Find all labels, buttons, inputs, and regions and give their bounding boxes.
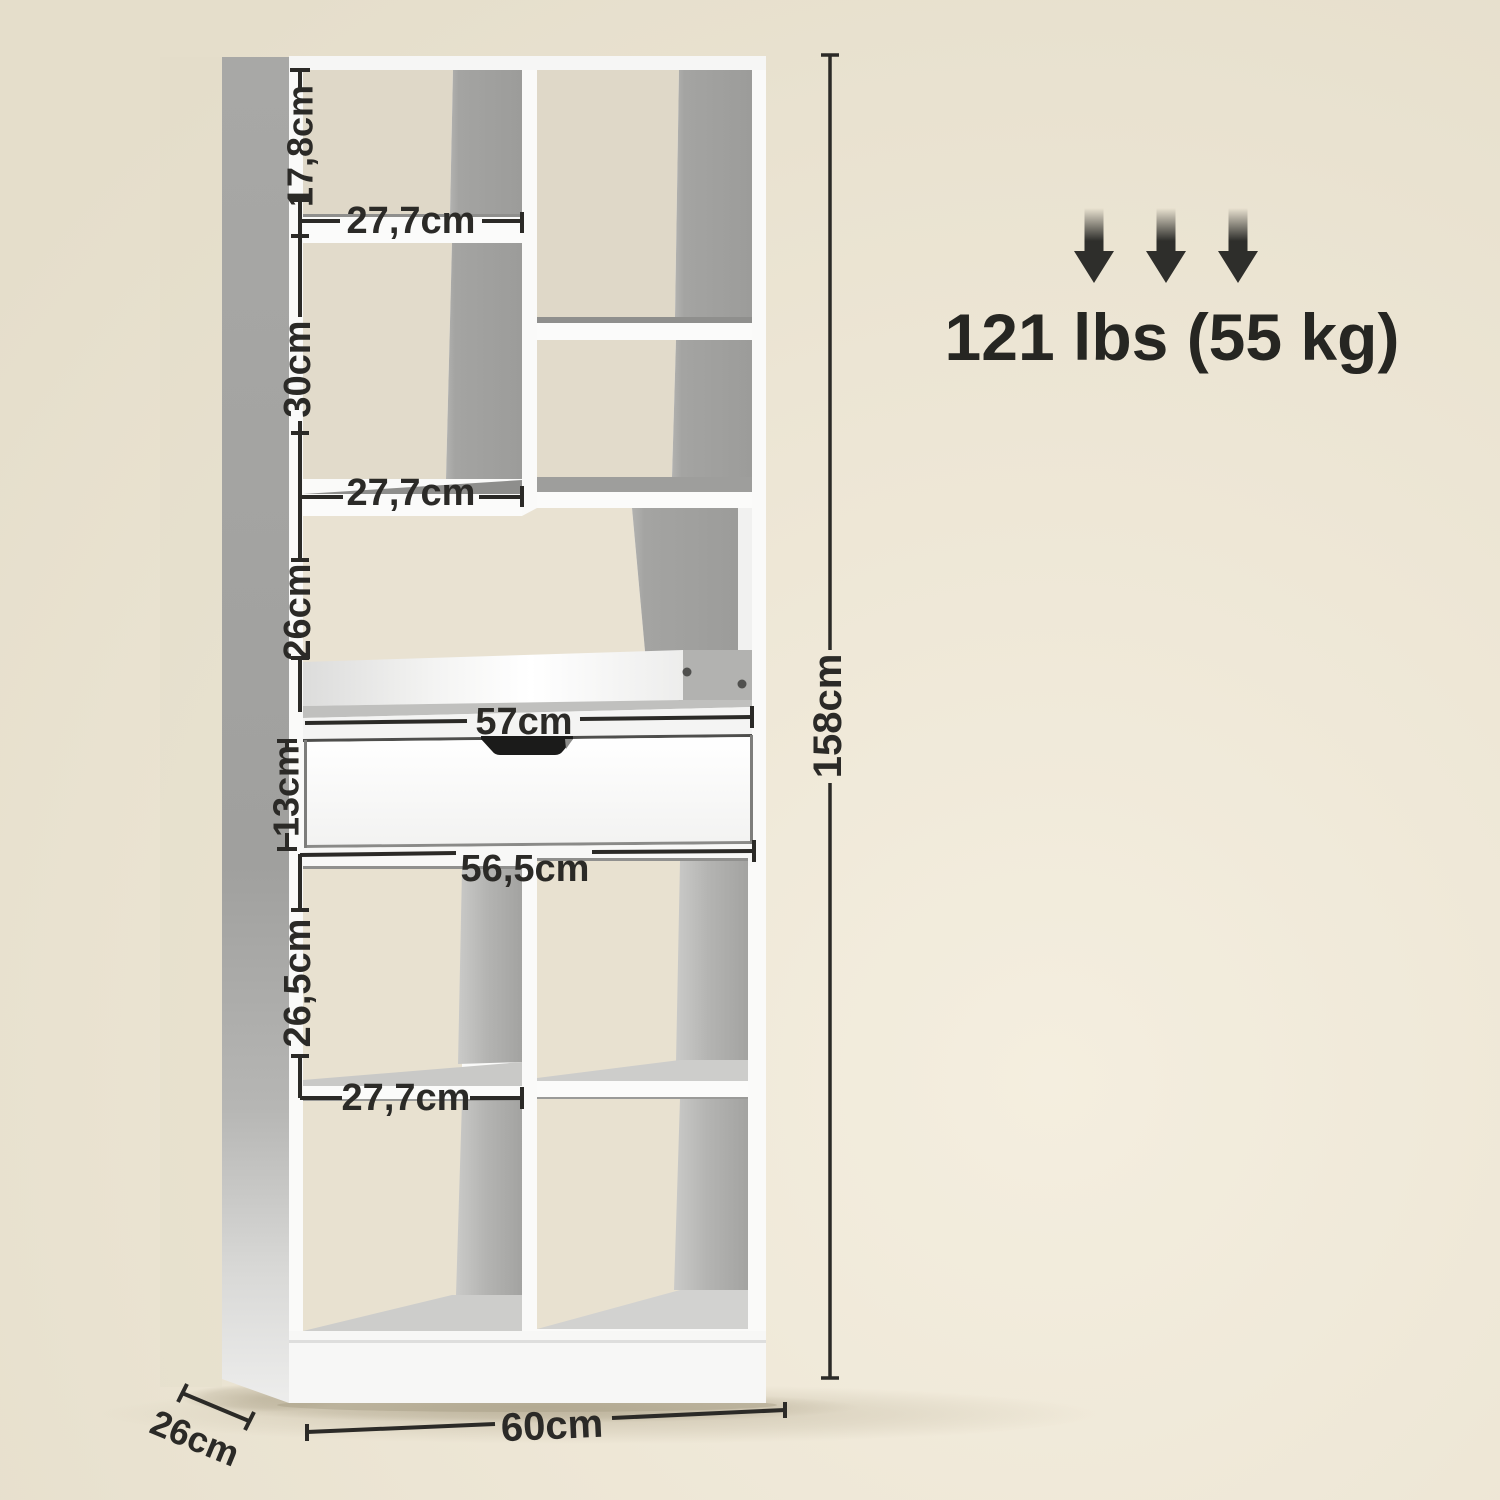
svg-text:57cm: 57cm [475, 701, 572, 743]
svg-text:17,8cm: 17,8cm [280, 85, 321, 207]
svg-text:26,5cm: 26,5cm [277, 919, 319, 1048]
svg-text:121 lbs (55 kg): 121 lbs (55 kg) [945, 300, 1400, 374]
svg-text:30cm: 30cm [277, 320, 319, 417]
svg-text:27,7cm: 27,7cm [342, 1077, 471, 1119]
svg-text:56,5cm: 56,5cm [461, 848, 590, 890]
svg-text:60cm: 60cm [500, 1402, 604, 1451]
svg-text:27,7cm: 27,7cm [347, 200, 476, 242]
svg-text:26cm: 26cm [277, 563, 319, 660]
svg-text:27,7cm: 27,7cm [347, 472, 476, 514]
svg-text:13cm: 13cm [266, 745, 307, 837]
svg-text:158cm: 158cm [806, 654, 850, 779]
